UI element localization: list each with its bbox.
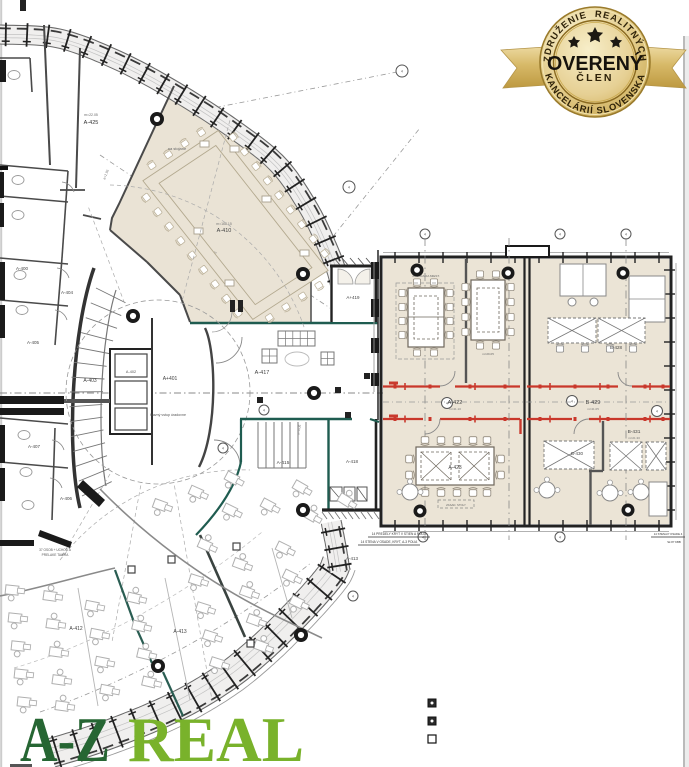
- svg-text:4: 4: [348, 186, 350, 190]
- svg-text:37 OSOB + UCHOD A: 37 OSOB + UCHOD A: [39, 548, 72, 552]
- svg-text:14 STENA V OSADE, KRYT, A-3 PO: 14 STENA V OSADE, KRYT, A-3 POLIA: [361, 540, 419, 544]
- svg-text:B-430: B-430: [571, 451, 584, 456]
- svg-text:m=29.05: m=29.05: [482, 352, 494, 356]
- svg-text:A-402: A-402: [126, 370, 136, 374]
- svg-text:A+401: A+401: [163, 376, 178, 382]
- svg-text:m=41.10: m=41.10: [449, 407, 461, 411]
- svg-text:A-Z: A-Z: [20, 704, 110, 767]
- svg-text:B-431: B-431: [628, 429, 641, 435]
- svg-text:A-404: A-404: [61, 290, 74, 295]
- svg-text:Sk 87 KBB: Sk 87 KBB: [667, 540, 681, 544]
- svg-text:4: 4: [559, 536, 561, 540]
- svg-text:ČLEN: ČLEN: [576, 71, 613, 84]
- svg-text:A-407: A-407: [28, 444, 41, 449]
- svg-text:4: 4: [424, 233, 426, 237]
- svg-text:REAL: REAL: [128, 704, 304, 767]
- svg-text:A-403: A-403: [83, 378, 97, 384]
- svg-text:14 PREDELY KRYT V STIEN A POLI: 14 PREDELY KRYT V STIEN A POLIA: [372, 532, 427, 536]
- svg-text:A-418: A-418: [346, 459, 359, 464]
- svg-text:4: 4: [222, 447, 224, 451]
- svg-text:m=21.30: m=21.30: [628, 436, 640, 440]
- svg-text:na stojane: na stojane: [168, 146, 187, 151]
- svg-text:4: 4: [656, 410, 658, 414]
- svg-text:4: 4: [625, 233, 627, 237]
- svg-text:hlavný vstup úradovne: hlavný vstup úradovne: [150, 413, 186, 417]
- svg-text:4: 4: [559, 233, 561, 237]
- svg-text:A-423: A-423: [448, 465, 462, 471]
- svg-text:PRELAKE TAWRA: PRELAKE TAWRA: [42, 553, 70, 557]
- svg-text:A+419: A+419: [346, 295, 360, 300]
- svg-text:B-428: B-428: [610, 345, 623, 350]
- svg-text:B-429: B-429: [586, 400, 601, 406]
- svg-text:4: 4: [352, 595, 354, 599]
- svg-text:A-410: A-410: [217, 228, 232, 234]
- svg-text:A-415: A-415: [277, 460, 290, 466]
- svg-text:A-413: A-413: [173, 629, 187, 635]
- svg-text:ZASAD. STOLY: ZASAD. STOLY: [446, 503, 466, 507]
- svg-text:m=41.05: m=41.05: [587, 407, 599, 411]
- svg-text:A-406: A-406: [60, 496, 73, 501]
- svg-text:14 STENA P OSADE 4: 14 STENA P OSADE 4: [654, 532, 683, 536]
- svg-text:A-422: A-422: [448, 400, 463, 406]
- svg-text:4: 4: [571, 400, 573, 404]
- svg-text:4: 4: [422, 536, 424, 540]
- svg-text:A-425: A-425: [84, 120, 99, 126]
- svg-text:A-405: A-405: [27, 340, 40, 345]
- svg-text:A-413: A-413: [346, 556, 359, 561]
- svg-text:A-412: A-412: [69, 626, 83, 632]
- svg-text:A-417: A-417: [255, 370, 270, 376]
- svg-text:m=22.05: m=22.05: [84, 113, 98, 117]
- svg-text:A-400: A-400: [16, 266, 29, 271]
- svg-text:4: 4: [263, 409, 265, 413]
- svg-text:4: 4: [401, 70, 403, 74]
